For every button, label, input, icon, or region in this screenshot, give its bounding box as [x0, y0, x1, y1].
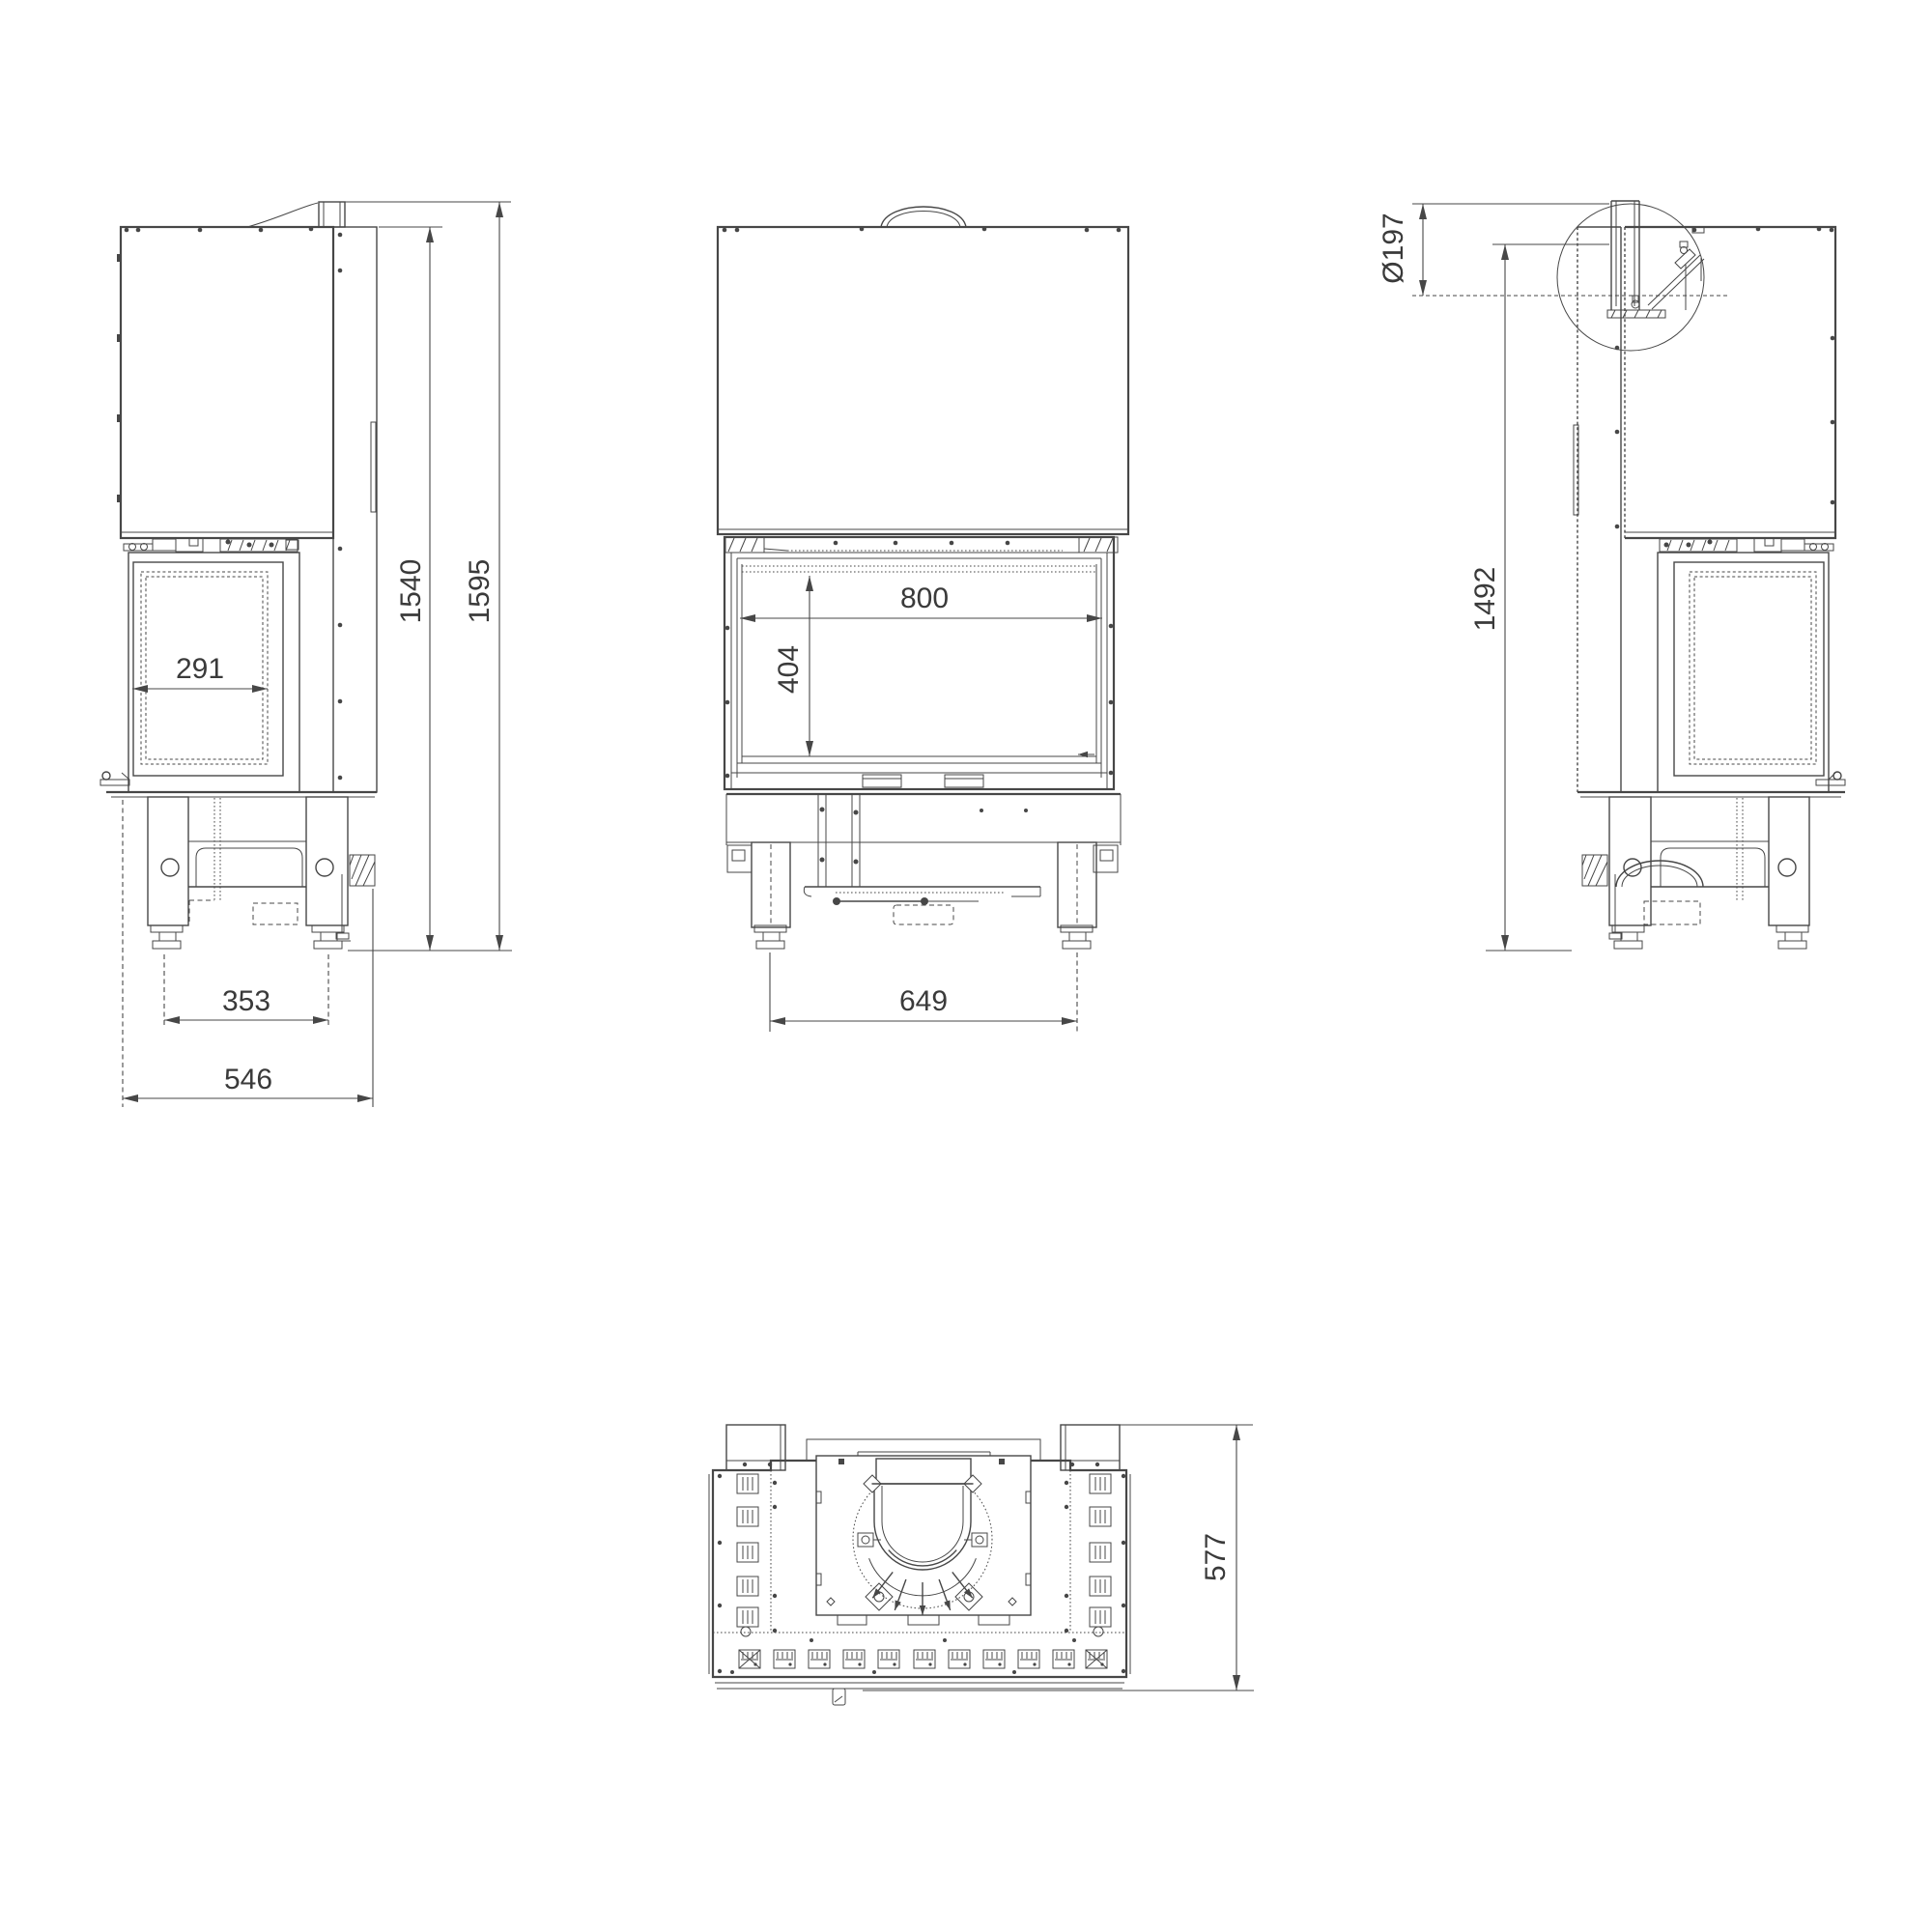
flue-arc — [247, 203, 318, 227]
hood-outline — [117, 202, 377, 792]
door-top-hardware — [124, 538, 298, 552]
flue-dome — [881, 207, 966, 227]
right-hood — [1557, 201, 1835, 792]
dim-front-feet-spacing: 649 — [899, 985, 948, 1017]
door-handle — [102, 772, 110, 780]
dims-front-view: 800 404 649 — [740, 576, 1102, 1032]
dim-top-depth: 577 — [1200, 1533, 1232, 1581]
front-hood — [718, 207, 1128, 534]
dim-side-feet-spacing: 353 — [222, 985, 270, 1017]
dim-flue-diameter: Ø197 — [1378, 213, 1409, 283]
top-center-plate — [816, 1456, 1031, 1625]
dim-firebox-height: 404 — [773, 645, 805, 694]
dims-left-view: 291 353 546 1540 1595 — [123, 202, 512, 1107]
right-door-top-hardware — [1660, 538, 1833, 552]
left-side-view: 291 353 546 1540 1595 — [100, 202, 512, 1107]
front-base — [726, 794, 1121, 949]
dim-height-total: 1595 — [464, 559, 496, 624]
front-trim-band — [725, 537, 1118, 553]
right-side-view: Ø197 1492 — [1378, 201, 1845, 951]
drawing-page: 291 353 546 1540 1595 — [0, 0, 1932, 1932]
side-base — [106, 792, 377, 949]
dims-right-view: Ø197 1492 — [1378, 204, 1729, 951]
front-view: 800 404 649 — [718, 207, 1128, 1032]
top-front-vent-band — [713, 1633, 1126, 1705]
technical-drawing-canvas: 291 353 546 1540 1595 — [0, 0, 1932, 1932]
damper-detail — [1632, 241, 1704, 310]
dim-height-to-flue-outlet: 1492 — [1469, 567, 1501, 632]
top-view: 577 — [709, 1425, 1254, 1705]
dim-door-glass-depth: 291 — [176, 653, 224, 685]
dim-firebox-width: 800 — [900, 582, 949, 614]
detail-balloon-circle — [1557, 204, 1704, 351]
right-glass-door — [1658, 553, 1845, 792]
dim-height-to-hood-top: 1540 — [395, 559, 427, 624]
dim-side-depth-total: 546 — [224, 1064, 272, 1095]
right-base — [1577, 792, 1845, 949]
